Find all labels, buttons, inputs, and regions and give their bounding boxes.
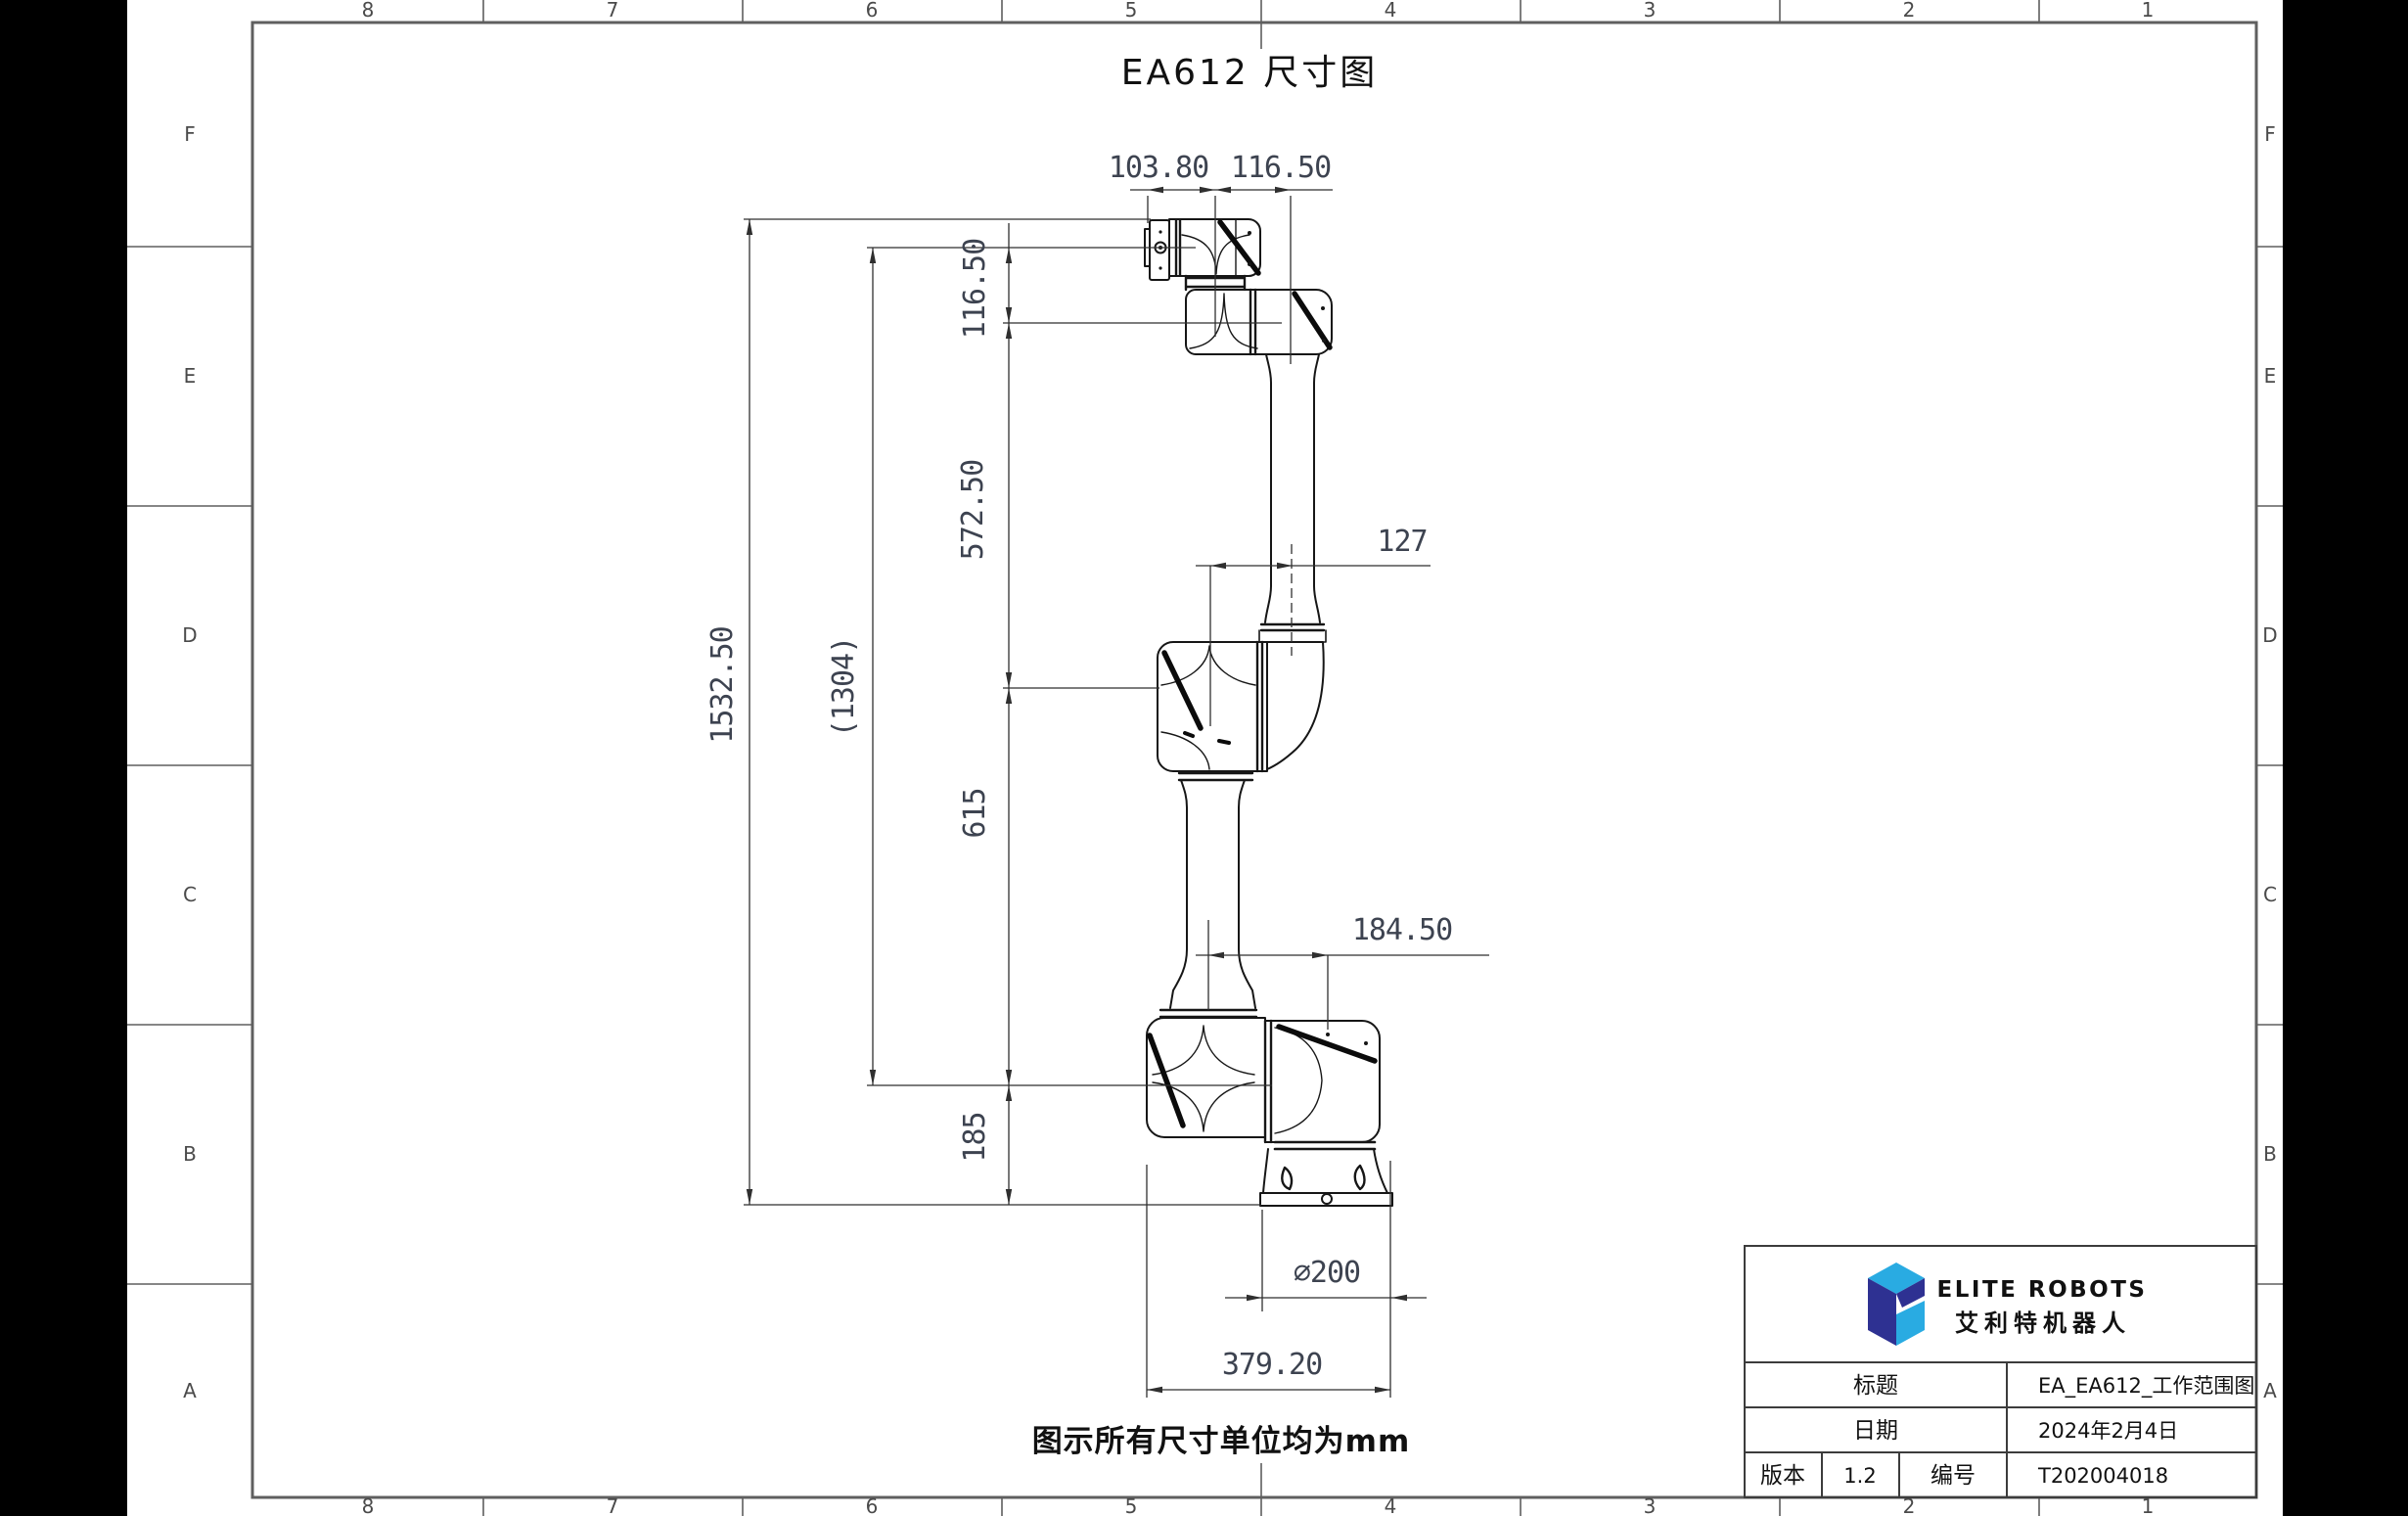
zone-row-right-E: E — [2264, 364, 2277, 388]
dim-base-diameter: ∅200 — [1294, 1256, 1360, 1290]
flange-screw-top — [1159, 230, 1161, 233]
zone-row-left-B: B — [183, 1142, 197, 1166]
zone-row-left-A: A — [183, 1379, 197, 1402]
wrist1-screw-b — [1248, 262, 1251, 266]
wrist2-screw-b — [1322, 339, 1326, 343]
drawing-title: EA612 尺寸图 — [1121, 53, 1379, 93]
date-value: 2024年2月4日 — [2038, 1419, 2178, 1443]
zone-row-right-A: A — [2263, 1379, 2277, 1402]
dim-base-to-shoulder: 185 — [958, 1112, 992, 1162]
zone-col-top-7: 7 — [607, 0, 619, 22]
zone-col-top-5: 5 — [1125, 0, 1138, 22]
zone-row-left-D: D — [182, 623, 197, 647]
zone-row-left-F: F — [184, 122, 196, 146]
dim-flange-reach: (1304) — [827, 637, 861, 737]
zone-col-top-2: 2 — [1903, 0, 1916, 22]
zone-col-top-8: 8 — [362, 0, 375, 22]
zone-col-bottom-3: 3 — [1644, 1494, 1657, 1516]
zone-col-bottom-7: 7 — [607, 1494, 619, 1516]
zone-row-right-D: D — [2262, 623, 2277, 647]
zone-col-top-6: 6 — [866, 0, 879, 22]
zone-row-right-B: B — [2263, 1142, 2277, 1166]
wrist2-screw-a — [1321, 306, 1325, 310]
zone-col-bottom-5: 5 — [1125, 1494, 1138, 1516]
zone-row-left-E: E — [184, 364, 197, 388]
title-value: EA_EA612_工作范围图 — [2038, 1374, 2254, 1399]
flange-screw-bottom — [1159, 266, 1161, 269]
screenshot-root: 8877665544332211FFEEDDCCBBAA EA612 尺寸图 图… — [0, 0, 2408, 1516]
zone-row-left-C: C — [183, 883, 197, 906]
base-plate-notch — [1322, 1194, 1332, 1204]
dim-shoulder-base-offset: 184.50 — [1352, 913, 1452, 947]
number-label: 编号 — [1931, 1463, 1976, 1489]
dim-wrist1-to-wrist2: 116.50 — [958, 239, 992, 339]
dim-flange-offset: 103.80 — [1109, 151, 1208, 185]
dim-lower-arm: 615 — [958, 788, 992, 838]
zone-row-right-F: F — [2264, 122, 2276, 146]
drawing-sheet: 8877665544332211FFEEDDCCBBAA EA612 尺寸图 图… — [0, 0, 2408, 1516]
zone-col-bottom-6: 6 — [866, 1494, 879, 1516]
zone-col-bottom-4: 4 — [1385, 1494, 1397, 1516]
dim-wrist2-offset: 116.50 — [1231, 151, 1331, 185]
version-value: 1.2 — [1843, 1464, 1876, 1488]
base-screw-a — [1326, 1033, 1330, 1036]
number-value: T202004018 — [2037, 1464, 2168, 1488]
zone-col-top-1: 1 — [2142, 0, 2155, 22]
brand-name-en: ELITE ROBOTS — [1937, 1277, 2148, 1303]
date-label: 日期 — [1853, 1418, 1898, 1444]
dim-elbow-offset: 127 — [1377, 525, 1427, 559]
version-label: 版本 — [1760, 1463, 1805, 1489]
zone-col-top-3: 3 — [1644, 0, 1657, 22]
base-screw-b — [1364, 1041, 1368, 1045]
zone-row-right-C: C — [2263, 883, 2277, 906]
dim-footprint-width: 379.20 — [1222, 1348, 1322, 1382]
unit-note: 图示所有尺寸单位均为mm — [1032, 1424, 1411, 1459]
dim-total-height: 1532.50 — [705, 626, 740, 743]
brand-name-cn: 艾利特机器人 — [1955, 1309, 2131, 1337]
dim-upper-arm: 572.50 — [956, 460, 990, 560]
zone-col-top-4: 4 — [1385, 0, 1397, 22]
title-label: 标题 — [1853, 1373, 1898, 1399]
zone-col-bottom-8: 8 — [362, 1494, 375, 1516]
wrist1-screw-a — [1248, 231, 1251, 235]
